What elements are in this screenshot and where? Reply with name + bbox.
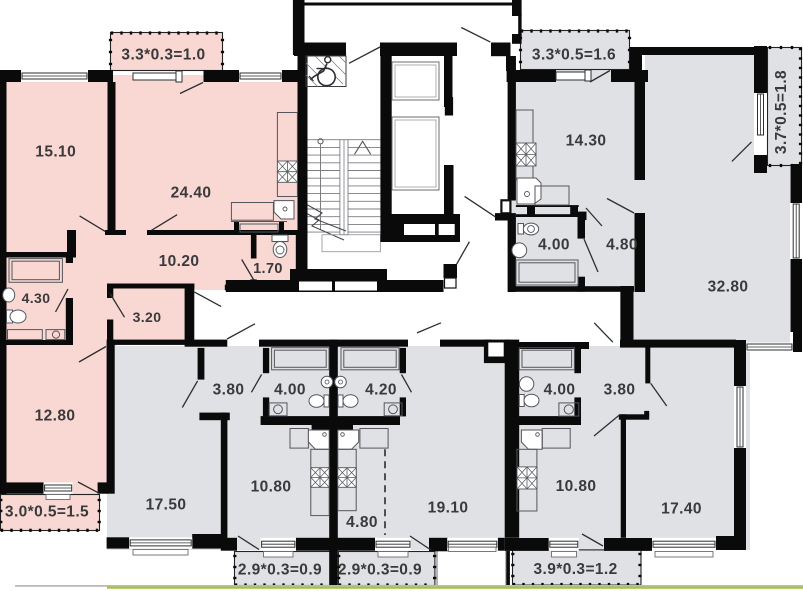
- svg-text:2.9*0.3=0.9: 2.9*0.3=0.9: [338, 562, 422, 579]
- svg-text:19.10: 19.10: [428, 499, 469, 516]
- svg-text:3.9*0.3=1.2: 3.9*0.3=1.2: [534, 561, 618, 578]
- svg-text:4.30: 4.30: [22, 290, 51, 306]
- svg-text:10.80: 10.80: [251, 478, 292, 495]
- svg-text:24.40: 24.40: [171, 185, 212, 202]
- svg-text:12.80: 12.80: [35, 407, 76, 424]
- svg-text:15.10: 15.10: [35, 143, 76, 160]
- svg-text:4.00: 4.00: [274, 381, 306, 398]
- svg-text:4.00: 4.00: [544, 381, 576, 398]
- svg-text:3.3*0.5=1.6: 3.3*0.5=1.6: [532, 47, 616, 64]
- svg-text:32.80: 32.80: [708, 278, 749, 295]
- svg-text:1.70: 1.70: [253, 261, 283, 277]
- svg-text:10.80: 10.80: [556, 478, 597, 495]
- svg-text:14.30: 14.30: [566, 132, 607, 149]
- svg-text:10.20: 10.20: [159, 253, 200, 270]
- svg-text:4.80: 4.80: [606, 236, 638, 253]
- svg-text:3.3*0.3=1.0: 3.3*0.3=1.0: [121, 47, 205, 64]
- svg-text:3.80: 3.80: [604, 381, 636, 398]
- svg-text:3.80: 3.80: [213, 381, 245, 398]
- svg-text:17.50: 17.50: [146, 496, 187, 513]
- svg-text:4.20: 4.20: [365, 381, 397, 398]
- svg-text:17.40: 17.40: [661, 501, 702, 518]
- svg-text:2.9*0.3=0.9: 2.9*0.3=0.9: [238, 562, 322, 579]
- svg-text:3.0*0.5=1.5: 3.0*0.5=1.5: [5, 504, 89, 521]
- svg-text:4.00: 4.00: [538, 236, 570, 253]
- svg-text:4.80: 4.80: [346, 514, 378, 531]
- svg-text:3.20: 3.20: [133, 309, 162, 325]
- svg-text:3.7*0.5=1.8: 3.7*0.5=1.8: [773, 70, 790, 154]
